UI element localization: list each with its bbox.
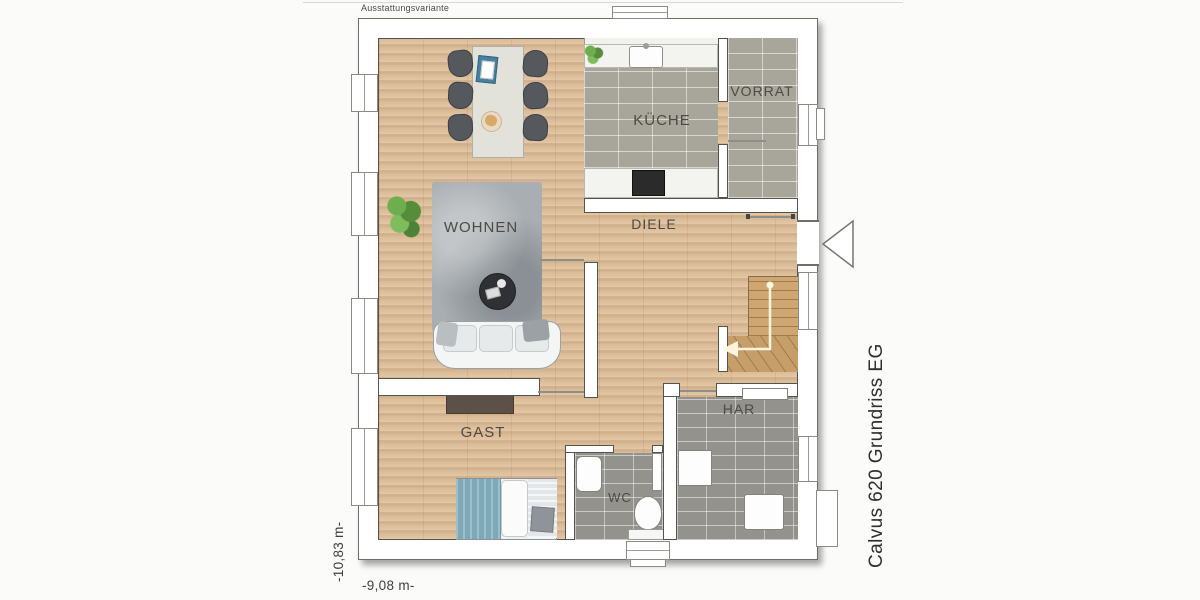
room-label-kitchen: KÜCHE xyxy=(612,112,712,129)
room-label-guest: GAST xyxy=(433,424,533,441)
plan-side-title: Calvus 620 Grundriss EG xyxy=(866,343,888,568)
stair-arrow-head-icon xyxy=(722,341,738,357)
entrance-direction-icon xyxy=(823,221,853,267)
room-label-living: WOHNEN xyxy=(431,219,531,236)
dimension-depth: -10,83 m- xyxy=(331,522,346,582)
room-label-hall: DIELE xyxy=(604,216,704,232)
stair-direction-arrow xyxy=(737,288,770,349)
plan-decorations xyxy=(0,0,1200,600)
dimension-width: -9,08 m- xyxy=(362,578,415,593)
room-label-wc: WC xyxy=(590,490,650,505)
stair-arrow-start-dot xyxy=(767,282,774,289)
room-label-har: HAR xyxy=(689,401,789,417)
room-label-pantry: VORRAT xyxy=(712,83,812,99)
floor-plan-page: Ausstattungsvariante xyxy=(0,0,1200,600)
